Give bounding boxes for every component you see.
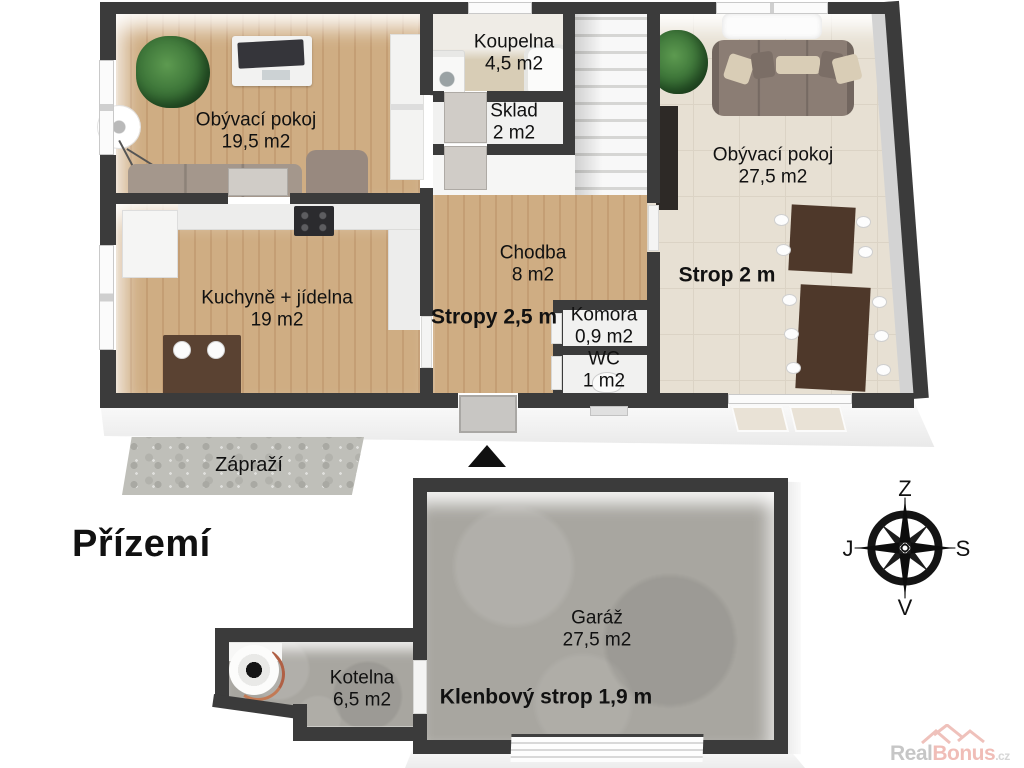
- wall: [413, 740, 513, 754]
- floor-stairs: [575, 3, 647, 197]
- glass-door-top: [716, 2, 828, 14]
- wardrobe-white: [390, 34, 424, 180]
- door-boiler-garage: [413, 660, 427, 714]
- vent: [590, 406, 628, 416]
- room-label-living1: Obývací pokoj 19,5 m2: [196, 110, 316, 155]
- wall: [774, 478, 788, 752]
- plate: [207, 341, 225, 359]
- ceiling-note-hallway: Stropy 2,5 m: [431, 306, 557, 331]
- watermark-text: RealBonus.cz: [890, 742, 1010, 766]
- room-area: 0,9 m2: [575, 327, 633, 348]
- wall: [420, 188, 433, 204]
- chair: [776, 244, 791, 256]
- room-label-living2: Obývací pokoj 27,5 m2: [713, 145, 833, 190]
- room-name: Kuchyně + jídelna: [201, 288, 353, 309]
- room-area: 19 m2: [251, 310, 304, 331]
- room-label-hallway: Chodba 8 m2: [500, 243, 567, 288]
- room-name: Sklad: [490, 101, 538, 122]
- window: [99, 245, 114, 350]
- room-name: Obývací pokoj: [196, 110, 316, 131]
- room-label-bathroom: Koupelna 4,5 m2: [474, 32, 554, 77]
- watermark-suffix: Bonus: [932, 742, 995, 765]
- chair: [876, 364, 891, 376]
- room-area: 1 m2: [583, 371, 625, 392]
- dining-table: [788, 204, 855, 273]
- washing-machine-icon: [429, 50, 465, 96]
- room-name: Koupelna: [474, 32, 554, 53]
- chair: [872, 296, 887, 308]
- page-title: Přízemí: [72, 522, 211, 567]
- chair: [856, 216, 871, 228]
- room-label-boiler: Kotelna 6,5 m2: [330, 668, 394, 713]
- door-wc: [551, 356, 562, 390]
- room-name: Chodba: [500, 243, 567, 264]
- pillow: [750, 51, 775, 80]
- room-area: 8 m2: [512, 265, 554, 286]
- wall: [563, 2, 575, 155]
- chair: [784, 328, 799, 340]
- wall: [826, 2, 892, 14]
- wall: [290, 193, 433, 204]
- wall: [433, 144, 444, 155]
- window: [99, 60, 114, 155]
- kitchen-counter-side: [388, 230, 420, 330]
- door-interior: [228, 168, 288, 196]
- room-name: WC: [588, 349, 620, 370]
- chair: [786, 362, 801, 374]
- entrance-arrow-icon: [468, 445, 506, 467]
- wall: [100, 2, 420, 14]
- stove-icon: [294, 206, 334, 236]
- garage-right-face: [788, 482, 801, 754]
- tv-shelf: [262, 70, 290, 80]
- daybed: [722, 13, 822, 39]
- compass-west-label: Z: [898, 476, 911, 502]
- watermark-prefix: Real: [890, 742, 932, 765]
- dining-table: [795, 284, 870, 392]
- room-area: 4,5 m2: [485, 54, 543, 75]
- chair: [782, 294, 797, 306]
- porch-label: Zápraží: [215, 454, 283, 478]
- wall: [647, 252, 660, 393]
- wall: [100, 2, 116, 60]
- room-area: 2 m2: [493, 123, 535, 144]
- room-label-kitchen: Kuchyně + jídelna 19 m2: [201, 288, 353, 333]
- door-storage: [444, 146, 487, 190]
- wall: [420, 204, 433, 316]
- wall: [647, 2, 660, 203]
- compass-south-label: J: [843, 536, 854, 562]
- room-area: 27,5 m2: [563, 630, 632, 651]
- room-label-storage: Sklad 2 m2: [490, 101, 538, 146]
- compass-rose-icon: [849, 492, 961, 604]
- room-name: Komora: [571, 305, 638, 326]
- room-label-garage: Garáž 27,5 m2: [563, 608, 632, 653]
- wall: [532, 2, 718, 14]
- glass-pane: [731, 406, 789, 432]
- room-name: Garáž: [571, 608, 623, 629]
- glass-pane: [789, 406, 847, 432]
- ceiling-note-garage: Klenbový strop 1,9 m: [440, 686, 652, 711]
- door-bathroom: [444, 92, 487, 143]
- wall: [433, 91, 444, 102]
- wall: [420, 368, 433, 393]
- front-door: [459, 395, 517, 433]
- pillow: [776, 56, 820, 74]
- watermark-tld: .cz: [995, 749, 1010, 763]
- wall: [293, 727, 427, 741]
- fridge: [122, 210, 178, 278]
- wall: [413, 478, 788, 492]
- boiler-icon: [229, 645, 279, 695]
- wall: [108, 193, 228, 204]
- wall: [700, 740, 788, 754]
- compass-north-label: S: [956, 536, 971, 562]
- watermark: RealBonus.cz: [888, 724, 1018, 766]
- plant-icon: [136, 36, 210, 108]
- room-area: 19,5 m2: [222, 132, 291, 153]
- armchair: [306, 150, 368, 197]
- bathroom-window: [468, 2, 532, 14]
- room-label-wc: WC 1 m2: [583, 349, 625, 394]
- ceiling-note-living2: Strop 2 m: [679, 264, 776, 289]
- glass-door-sill: [728, 394, 852, 404]
- room-name: Kotelna: [330, 668, 394, 689]
- room-label-pantry: Komora 0,9 m2: [571, 305, 638, 350]
- door-living2: [648, 205, 659, 251]
- tv-icon: [237, 39, 304, 68]
- chair: [874, 330, 889, 342]
- watermark-roof-icon: [920, 724, 994, 744]
- garage-door: [511, 734, 704, 762]
- plate: [173, 341, 191, 359]
- wall: [487, 144, 575, 155]
- room-name: Obývací pokoj: [713, 145, 833, 166]
- room-area: 6,5 m2: [333, 690, 391, 711]
- wall: [100, 393, 458, 408]
- wall: [420, 2, 433, 95]
- chair: [858, 246, 873, 258]
- wall: [852, 393, 914, 408]
- room-area: 27,5 m2: [739, 167, 808, 188]
- wall: [215, 628, 427, 642]
- compass-east-label: V: [898, 595, 913, 621]
- floor-plan: Obývací pokoj 19,5 m2 Koupelna 4,5 m2 Sk…: [0, 0, 1024, 768]
- chair: [774, 214, 789, 226]
